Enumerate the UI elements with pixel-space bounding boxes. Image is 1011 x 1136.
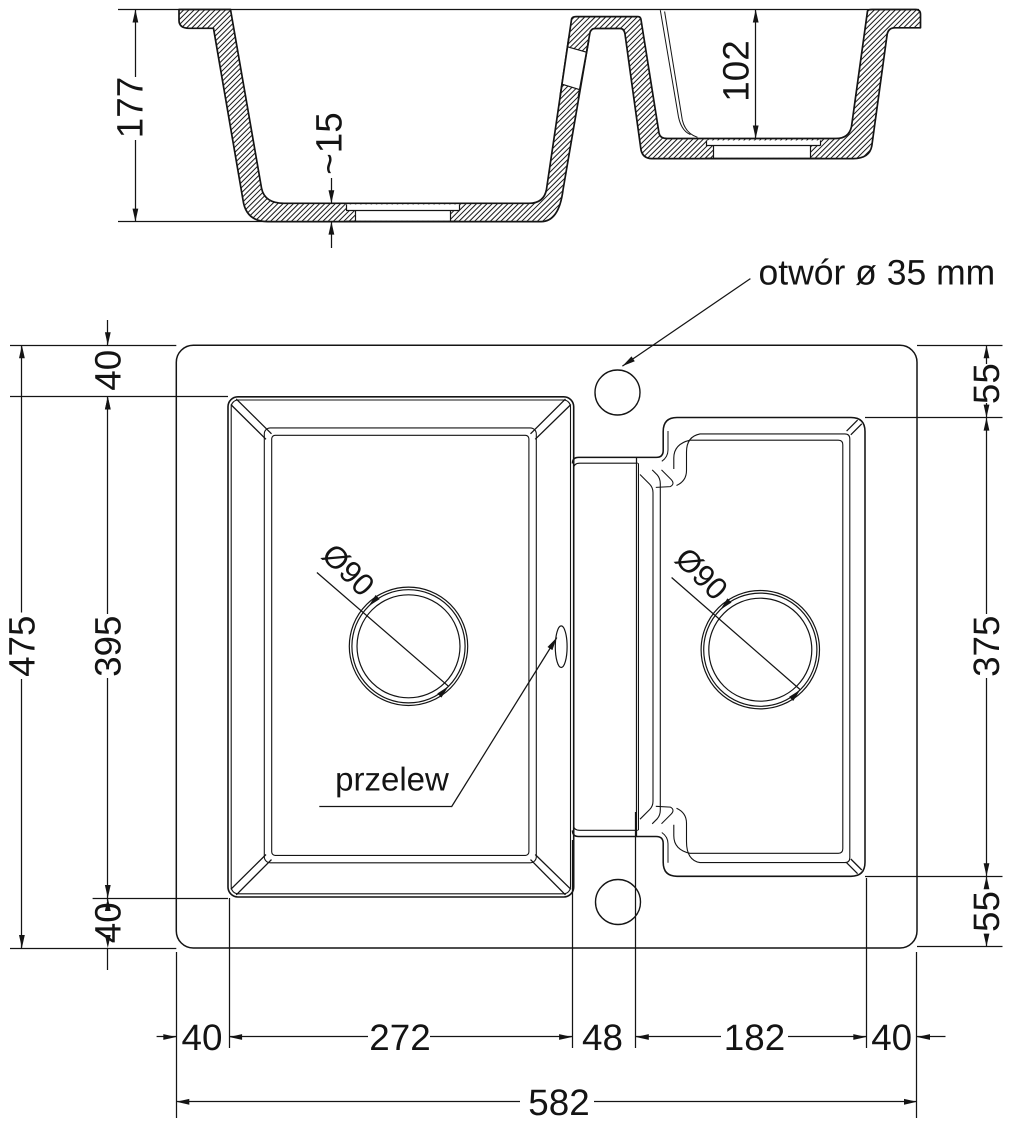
svg-text:przelew: przelew [335,761,449,798]
svg-text:375: 375 [966,615,1007,676]
svg-text:395: 395 [87,615,128,676]
svg-text:182: 182 [724,1017,785,1058]
svg-text:40: 40 [182,1017,223,1058]
svg-text:475: 475 [1,615,42,676]
svg-text:582: 582 [528,1082,589,1123]
svg-text:272: 272 [369,1017,430,1058]
svg-text:40: 40 [87,902,128,943]
svg-text:102: 102 [716,40,757,101]
svg-text:40: 40 [871,1017,912,1058]
svg-text:otwór ø 35 mm: otwór ø 35 mm [759,253,996,293]
svg-text:55: 55 [966,891,1007,932]
svg-text:~15: ~15 [309,112,350,174]
svg-text:40: 40 [87,350,128,391]
svg-text:48: 48 [582,1017,623,1058]
svg-text:55: 55 [966,363,1007,404]
svg-text:177: 177 [110,77,151,138]
